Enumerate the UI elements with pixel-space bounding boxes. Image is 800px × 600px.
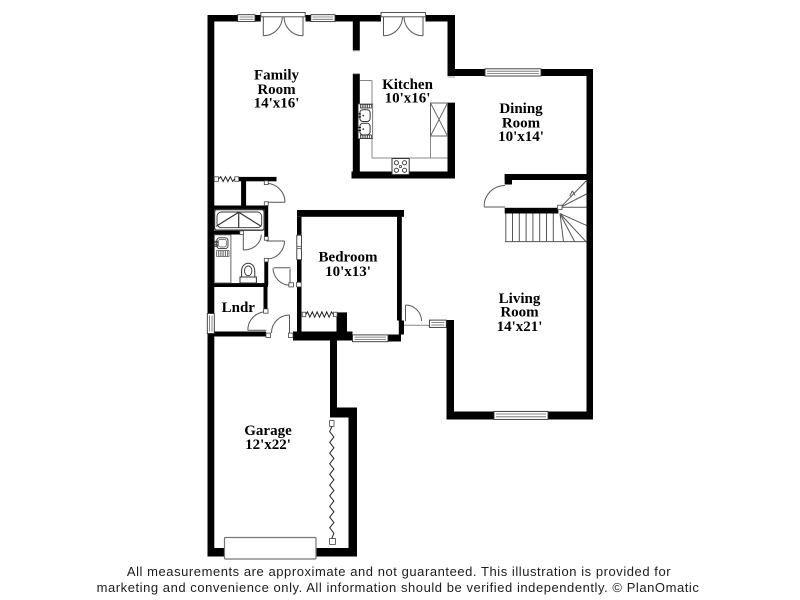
svg-text:All measurements are approxima: All measurements are approximate and not… xyxy=(127,564,671,579)
svg-text:12'x22': 12'x22' xyxy=(245,437,291,453)
svg-text:10'x14': 10'x14' xyxy=(498,129,544,145)
svg-text:14'x21': 14'x21' xyxy=(497,319,543,335)
svg-text:10'x13': 10'x13' xyxy=(325,264,371,280)
svg-text:10'x16': 10'x16' xyxy=(385,91,431,107)
svg-text:Lndr: Lndr xyxy=(222,300,256,316)
svg-text:marketing and convenience only: marketing and convenience only. All info… xyxy=(97,580,700,595)
svg-text:14'x16': 14'x16' xyxy=(254,96,300,112)
